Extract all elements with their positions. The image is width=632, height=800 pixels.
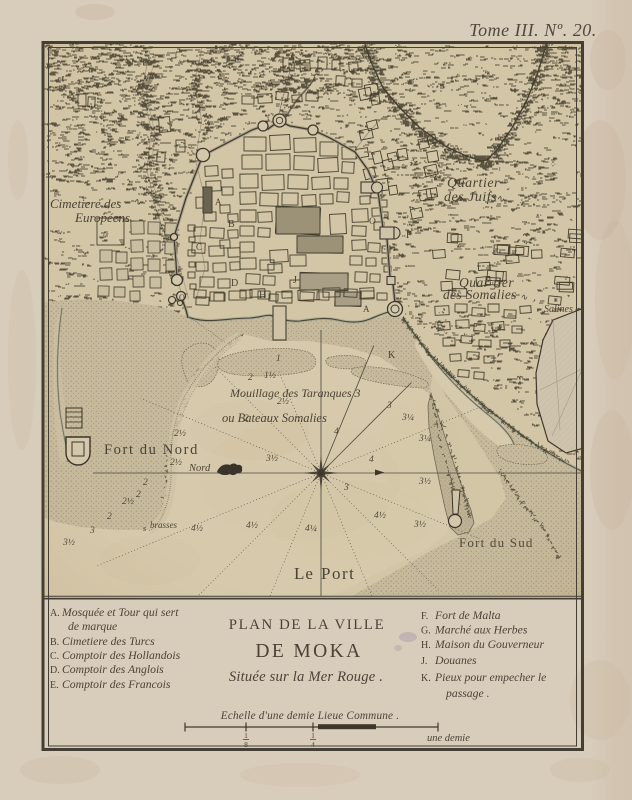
svg-text:Mouillage des Taranques 3: Mouillage des Taranques 3 [229,386,361,400]
svg-text:2: 2 [244,414,249,424]
svg-text:Cimetiere des Turcs: Cimetiere des Turcs [62,635,155,648]
svg-text:1: 1 [244,731,248,740]
svg-text:3¼: 3¼ [418,433,431,444]
svg-text:Marché aux Herbes: Marché aux Herbes [434,624,528,637]
svg-text:D: D [231,278,238,289]
svg-text:F: F [406,230,412,241]
svg-text:2: 2 [143,478,148,488]
svg-text:3½: 3½ [265,453,278,464]
svg-text:s: s [143,524,146,533]
svg-text:passage .: passage . [445,687,490,700]
svg-text:4: 4 [369,455,374,465]
svg-text:3½: 3½ [62,537,75,548]
svg-text:3½: 3½ [418,476,431,487]
svg-text:2: 2 [107,512,112,522]
svg-text:3: 3 [386,401,392,411]
svg-text:A: A [363,304,370,314]
svg-text:Cimetiere des: Cimetiere des [50,196,121,211]
svg-text:4: 4 [311,740,315,749]
svg-text:brasses: brasses [150,520,178,530]
svg-text:2½: 2½ [277,396,289,407]
svg-text:3: 3 [89,526,95,536]
svg-text:J: J [293,275,297,286]
svg-text:Maison du Gouverneur: Maison du Gouverneur [434,638,545,651]
svg-text:G.: G. [421,626,431,637]
svg-text:4¼: 4¼ [305,523,317,534]
svg-text:F.: F. [421,611,428,622]
svg-text:1½: 1½ [264,370,276,381]
svg-text:K: K [388,350,396,361]
svg-text:PLAN DE LA VILLE: PLAN DE LA VILLE [229,617,385,633]
svg-text:A: A [215,197,222,207]
svg-text:Port: Port [321,564,355,583]
svg-text:4½: 4½ [191,523,203,534]
svg-text:2: 2 [136,490,141,500]
svg-text:DE MOKA: DE MOKA [255,641,362,662]
svg-text:Comptoir des Hollandois: Comptoir des Hollandois [62,649,181,662]
svg-text:O: O [179,293,185,302]
svg-text:1: 1 [311,731,315,740]
svg-text:H: H [259,290,266,301]
svg-text:des Juifs: des Juifs [444,190,497,205]
svg-text:3¼: 3¼ [401,412,414,423]
svg-text:2½: 2½ [170,457,182,468]
svg-text:Mosquée et Tour qui sert: Mosquée et Tour qui sert [61,606,179,619]
svg-text:D.: D. [50,665,60,676]
svg-text:A.: A. [50,608,60,619]
svg-text:J.: J. [421,656,427,667]
svg-text:4½: 4½ [246,520,258,531]
svg-text:8: 8 [244,740,248,749]
svg-text:O: O [369,217,376,227]
svg-text:Fort de Malta: Fort de Malta [434,609,501,622]
svg-text:4½: 4½ [374,510,386,521]
svg-text:ou Bateaux Somalies: ou Bateaux Somalies [222,411,327,425]
svg-text:C.: C. [50,651,59,662]
svg-text:3½: 3½ [413,519,426,530]
svg-text:Douanes: Douanes [434,654,477,667]
svg-text:H.: H. [421,640,431,651]
svg-text:∿: ∿ [133,197,142,208]
svg-text:∿: ∿ [520,292,528,302]
svg-text:une demie: une demie [427,733,470,744]
svg-text:E.: E. [50,680,59,691]
svg-text:des Somalies: des Somalies [443,287,517,302]
svg-text:4: 4 [334,427,339,437]
svg-text:Nord: Nord [188,463,211,474]
svg-text:Pieux pour empecher le: Pieux pour empecher le [434,671,546,684]
svg-text:Comptoir des Francois: Comptoir des Francois [62,678,171,691]
svg-text:Fort du Nord: Fort du Nord [104,442,199,458]
svg-text:B.: B. [50,637,59,648]
svg-text:2½: 2½ [174,428,186,439]
svg-text:3: 3 [343,483,349,493]
svg-text:Comptoir des Anglois: Comptoir des Anglois [62,663,164,676]
svg-text:C: C [196,242,202,252]
svg-text:Fort du Sud: Fort du Sud [459,535,534,550]
svg-text:Européens: Européens [74,210,130,225]
svg-text:de marque: de marque [68,620,117,633]
svg-text:2½: 2½ [122,496,134,507]
svg-text:Echelle d'une demie Lieue Comm: Echelle d'une demie Lieue Commune . [220,710,399,722]
svg-text:K.: K. [421,673,431,684]
svg-text:∿: ∿ [496,194,505,205]
svg-text:B: B [228,219,235,230]
svg-text:2: 2 [248,373,253,383]
svg-text:Le: Le [294,564,314,583]
svg-text:Quartier: Quartier [447,176,500,191]
svg-text:Tome III. Nº. 20.: Tome III. Nº. 20. [469,20,596,40]
svg-text:1: 1 [276,354,281,364]
svg-text:Située sur la Mer Rouge .: Située sur la Mer Rouge . [229,669,383,685]
svg-text:Salines: Salines [544,304,573,315]
